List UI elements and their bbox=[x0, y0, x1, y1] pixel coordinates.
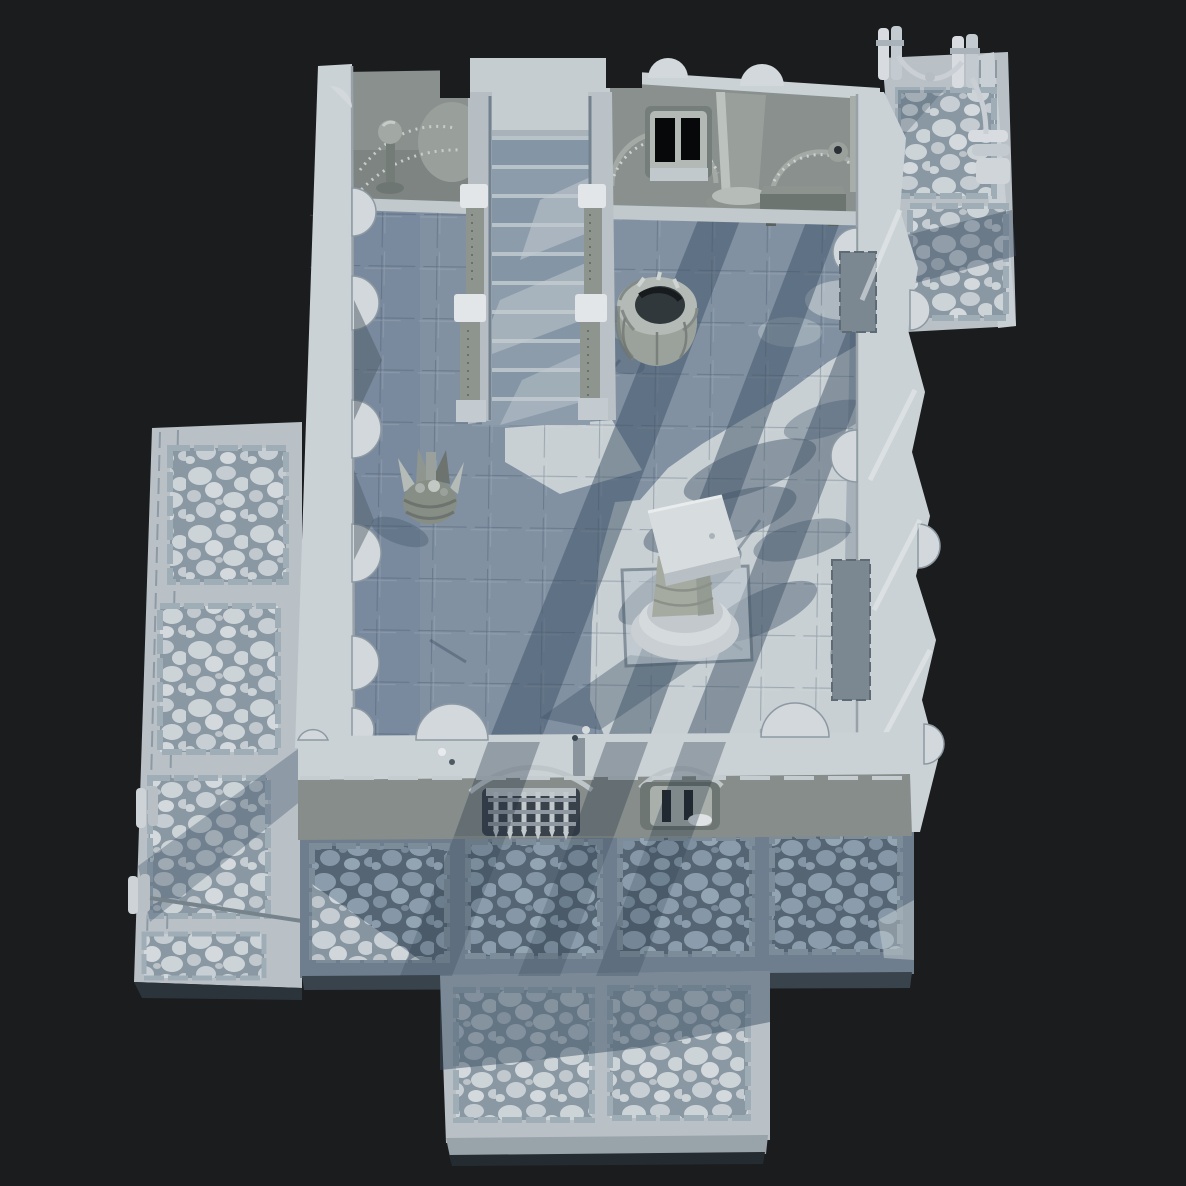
cobble-square bbox=[144, 934, 264, 978]
speck bbox=[572, 735, 578, 741]
cobble-square bbox=[170, 448, 286, 582]
roof-gap bbox=[606, 54, 642, 88]
3d-viewport[interactable] bbox=[0, 0, 1186, 1186]
roof-gap bbox=[440, 56, 470, 98]
wall-notch bbox=[573, 738, 585, 778]
cobble-pier bbox=[440, 971, 770, 1166]
speck bbox=[449, 759, 455, 765]
barred-window bbox=[645, 106, 712, 181]
pebble bbox=[438, 748, 446, 756]
viewport-canvas bbox=[0, 0, 1186, 1186]
rope-knot bbox=[925, 72, 935, 82]
grand-staircase bbox=[454, 58, 616, 425]
stone-pot bbox=[828, 142, 848, 162]
pebble bbox=[582, 726, 590, 734]
cobble-square bbox=[160, 606, 278, 752]
stone-well bbox=[617, 272, 697, 366]
